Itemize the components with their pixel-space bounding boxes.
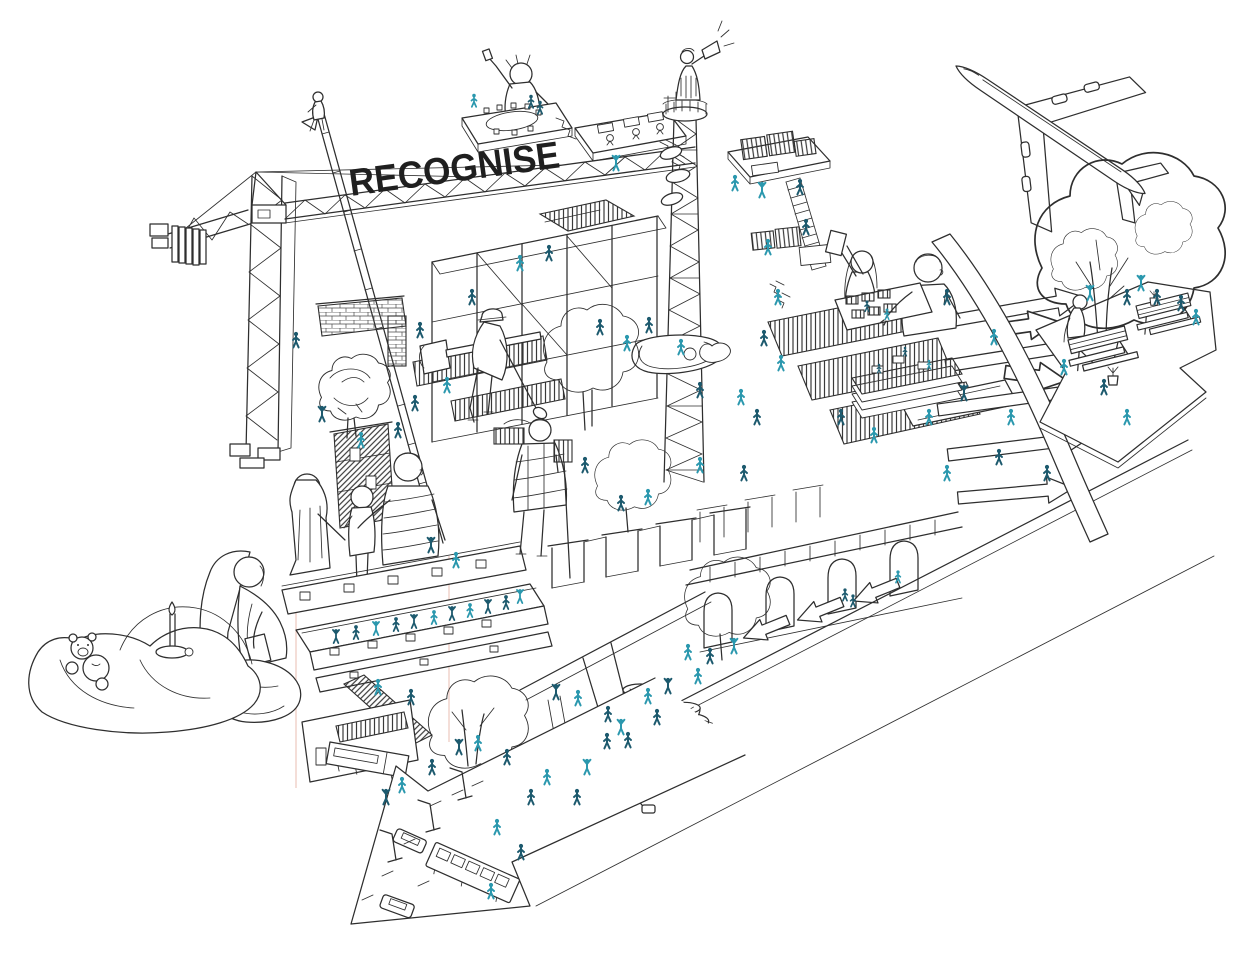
megaphone-speaker [676, 21, 734, 100]
mini-figure [319, 406, 326, 422]
mini-figure [685, 644, 691, 660]
airplane [907, 0, 1201, 271]
mini-figure [741, 465, 747, 481]
mini-figure [759, 182, 766, 198]
mini-figure [1008, 409, 1014, 425]
arch-exit-arrows [739, 573, 902, 648]
timber-platforms [728, 131, 831, 308]
mini-figure [429, 759, 435, 775]
mini-figure [582, 457, 588, 473]
mini-figure [695, 668, 701, 684]
mini-figure [408, 689, 414, 705]
title-text: RECOGNISE [347, 135, 563, 205]
mini-figure [645, 489, 651, 505]
mini-figure [293, 332, 299, 348]
mini-figure [803, 219, 809, 235]
office-platform [575, 112, 686, 172]
mini-figure [754, 409, 760, 425]
recognise-sign: RECOGNISE [347, 135, 563, 205]
mini-figure [618, 495, 624, 511]
mini-figure [395, 422, 401, 438]
mini-figure [456, 739, 463, 755]
mini-figure [778, 355, 784, 371]
mini-figure [1087, 285, 1094, 301]
mini-figure [469, 289, 475, 305]
mini-figure [597, 319, 603, 335]
mini-figure [761, 330, 767, 346]
mini-figure [624, 335, 630, 351]
presenter-platform [462, 49, 576, 152]
mini-figure [412, 395, 418, 411]
mini-figure [553, 684, 560, 700]
mini-figure [738, 389, 744, 405]
mini-figure [646, 317, 652, 333]
mini-figure [775, 289, 781, 305]
mini-figure [471, 94, 476, 107]
brick-wall [316, 296, 406, 366]
family-group [282, 453, 526, 614]
mini-figure [797, 179, 803, 195]
mini-figure [944, 465, 950, 481]
illustration-canvas: RECOGNISE [0, 0, 1240, 968]
recognise-illustration: RECOGNISE [0, 0, 1240, 968]
arched-viaduct [686, 512, 962, 652]
sleeping-bag [29, 628, 261, 733]
pergola-frames [548, 485, 823, 588]
mini-figure [732, 175, 738, 191]
mini-figure [546, 245, 552, 261]
mini-figure [417, 322, 423, 338]
mini-figure [575, 690, 581, 706]
telecom-tower [659, 21, 734, 482]
family-woman [290, 474, 345, 575]
sleeping-vignette [29, 551, 301, 733]
